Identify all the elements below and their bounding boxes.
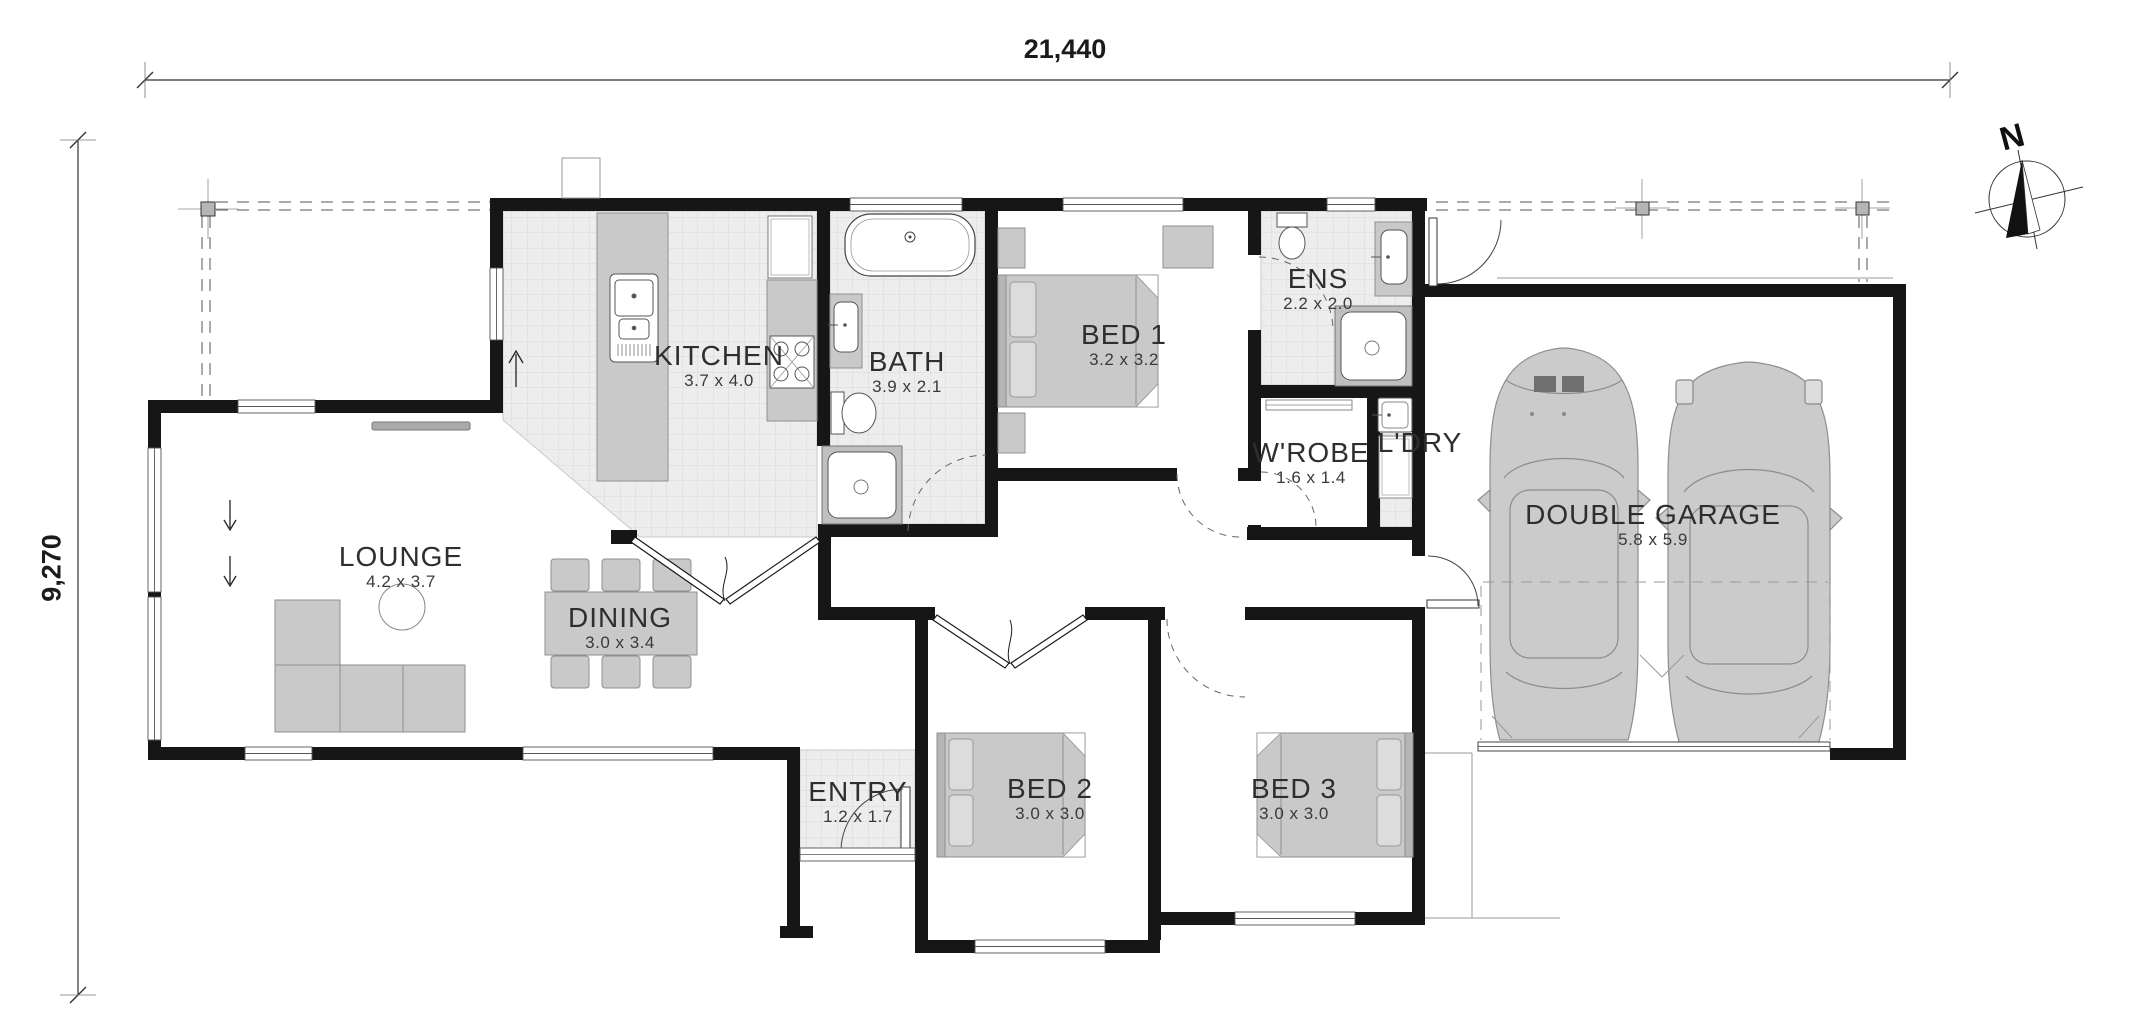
- room-name: L'DRY: [1378, 428, 1463, 458]
- ens-vanity: [1371, 222, 1412, 296]
- floor-plan: 21,440 9,270 N KITCHEN 3.7 x 4.0 BATH 3.…: [0, 0, 2134, 1016]
- room-label-lounge: LOUNGE 4.2 x 3.7: [339, 542, 463, 591]
- room-name: BED 3: [1251, 774, 1337, 804]
- fridge: [768, 216, 812, 278]
- bath-shower: [822, 446, 902, 524]
- car-sedan: [1656, 362, 1842, 745]
- room-label-wrobe: W'ROBE 1.6 x 1.4: [1252, 438, 1369, 487]
- bed1-dresser: [1163, 226, 1213, 268]
- bifold-doors: [631, 537, 1087, 668]
- kitchen-sink: [610, 274, 658, 362]
- room-dims: 3.0 x 3.4: [568, 633, 672, 652]
- room-name: ENTRY: [808, 777, 907, 807]
- wardrobe-rail: [1266, 400, 1352, 410]
- room-label-kitchen: KITCHEN 3.7 x 4.0: [654, 341, 784, 390]
- room-dims: 4.2 x 3.7: [339, 572, 463, 591]
- floor-plan-drawing: [0, 0, 2134, 1016]
- room-name: ENS: [1283, 264, 1353, 294]
- ens-shower: [1335, 306, 1412, 386]
- room-dims: 3.9 x 2.1: [869, 377, 946, 396]
- room-label-dining: DINING 3.0 x 3.4: [568, 603, 672, 652]
- room-name: DINING: [568, 603, 672, 633]
- room-label-bath: BATH 3.9 x 2.1: [869, 347, 946, 396]
- bath-vanity: [828, 294, 862, 368]
- room-dims: 5.8 x 5.9: [1525, 530, 1781, 549]
- room-dims: 3.2 x 3.2: [1081, 350, 1167, 369]
- room-label-bed1: BED 1 3.2 x 3.2: [1081, 320, 1167, 369]
- room-name: W'ROBE: [1252, 438, 1369, 468]
- sofa: [275, 600, 465, 732]
- room-dims: 3.7 x 4.0: [654, 371, 784, 390]
- bath-toilet: [831, 392, 876, 434]
- north-compass-icon: [1975, 150, 2083, 249]
- room-label-garage: DOUBLE GARAGE 5.8 x 5.9: [1525, 500, 1781, 549]
- bulkhead: [562, 158, 600, 198]
- room-name: BED 2: [1007, 774, 1093, 804]
- overall-height-dimension: 9,270: [37, 534, 68, 602]
- room-label-bed3: BED 3 3.0 x 3.0: [1251, 774, 1337, 823]
- room-label-entry: ENTRY 1.2 x 1.7: [808, 777, 907, 826]
- room-label-bed2: BED 2 3.0 x 3.0: [1007, 774, 1093, 823]
- room-name: BED 1: [1081, 320, 1167, 350]
- room-name: KITCHEN: [654, 341, 784, 371]
- bathtub: [845, 214, 975, 276]
- ens-toilet: [1277, 213, 1307, 259]
- overall-width-dimension: 21,440: [1024, 34, 1107, 65]
- room-name: DOUBLE GARAGE: [1525, 500, 1781, 530]
- room-name: LOUNGE: [339, 542, 463, 572]
- room-dims: 2.2 x 2.0: [1283, 294, 1353, 313]
- room-dims: 3.0 x 3.0: [1251, 804, 1337, 823]
- room-label-ldry: L'DRY: [1378, 428, 1463, 458]
- room-dims: 1.2 x 1.7: [808, 807, 907, 826]
- room-label-ens: ENS 2.2 x 2.0: [1283, 264, 1353, 313]
- room-dims: 1.6 x 1.4: [1252, 468, 1369, 487]
- room-dims: 3.0 x 3.0: [1007, 804, 1093, 823]
- garage-door: [1478, 742, 1830, 751]
- tv: [372, 422, 470, 430]
- room-name: BATH: [869, 347, 946, 377]
